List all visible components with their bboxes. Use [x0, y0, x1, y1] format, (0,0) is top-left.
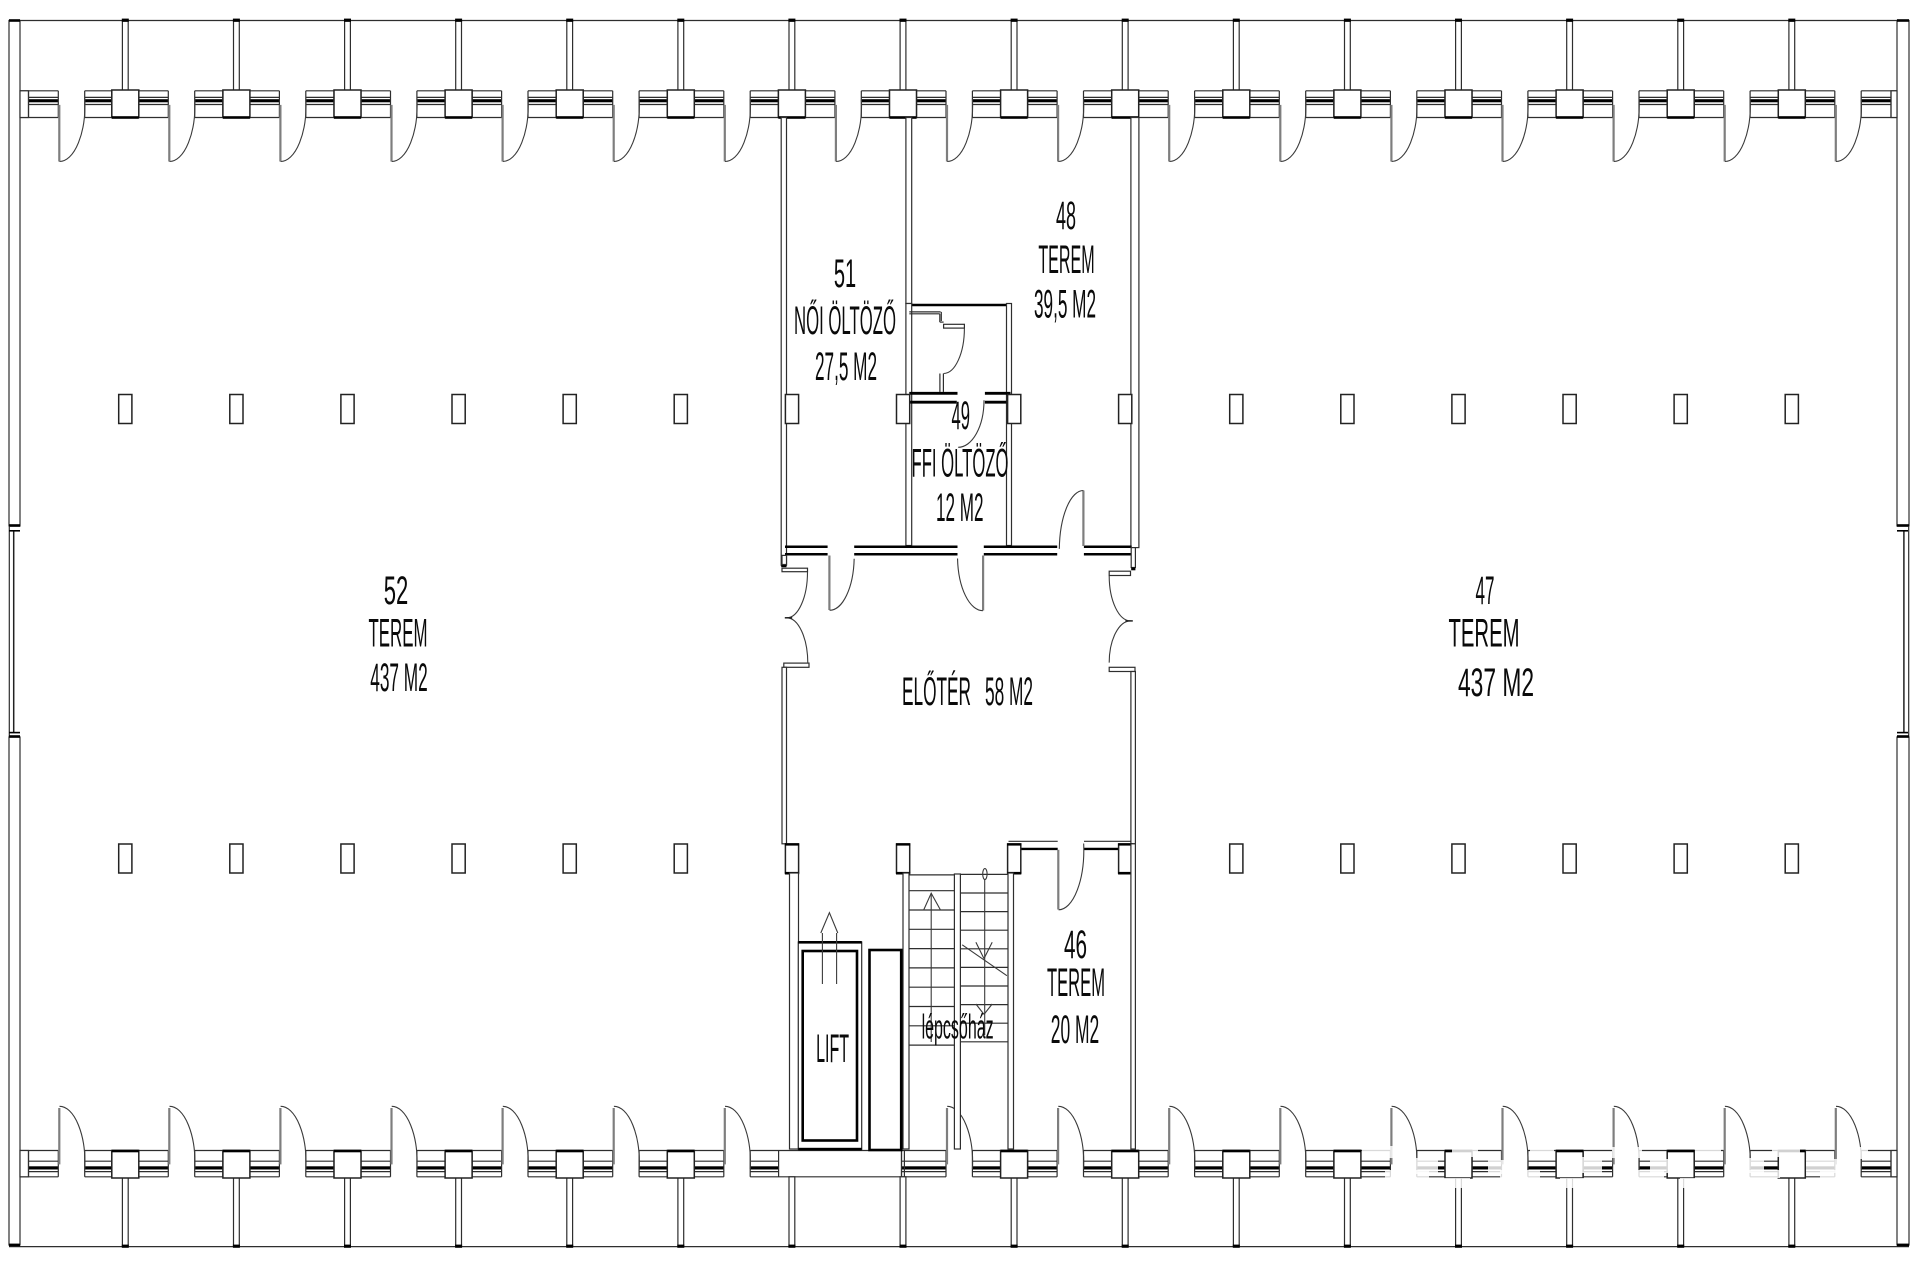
svg-text:NŐI ÖLTÖZŐ: NŐI ÖLTÖZŐ — [794, 298, 896, 343]
svg-text:FFI ÖLTÖZŐ: FFI ÖLTÖZŐ — [912, 440, 1009, 485]
svg-text:47: 47 — [1476, 569, 1495, 613]
svg-text:437 M2: 437 M2 — [370, 656, 428, 700]
svg-text:TEREM: TEREM — [1038, 238, 1094, 282]
svg-text:12 M2: 12 M2 — [936, 486, 984, 530]
svg-text:LIFT: LIFT — [816, 1027, 849, 1071]
svg-text:TEREM: TEREM — [1449, 612, 1520, 656]
svg-text:TEREM: TEREM — [1047, 961, 1105, 1005]
svg-text:51: 51 — [834, 252, 856, 296]
svg-text:lépcsőház: lépcsőház — [922, 1009, 994, 1047]
svg-text:ELŐTÉR: ELŐTÉR — [902, 669, 971, 714]
svg-text:TEREM: TEREM — [369, 612, 428, 656]
svg-text:39,5 M2: 39,5 M2 — [1034, 283, 1096, 327]
svg-text:49: 49 — [952, 394, 971, 438]
svg-text:48: 48 — [1056, 194, 1076, 238]
svg-text:27,5 M2: 27,5 M2 — [815, 345, 877, 389]
svg-text:58 M2: 58 M2 — [985, 670, 1033, 714]
svg-text:52: 52 — [384, 569, 409, 613]
svg-text:437 M2: 437 M2 — [1458, 661, 1534, 705]
svg-text:20 M2: 20 M2 — [1051, 1008, 1100, 1052]
